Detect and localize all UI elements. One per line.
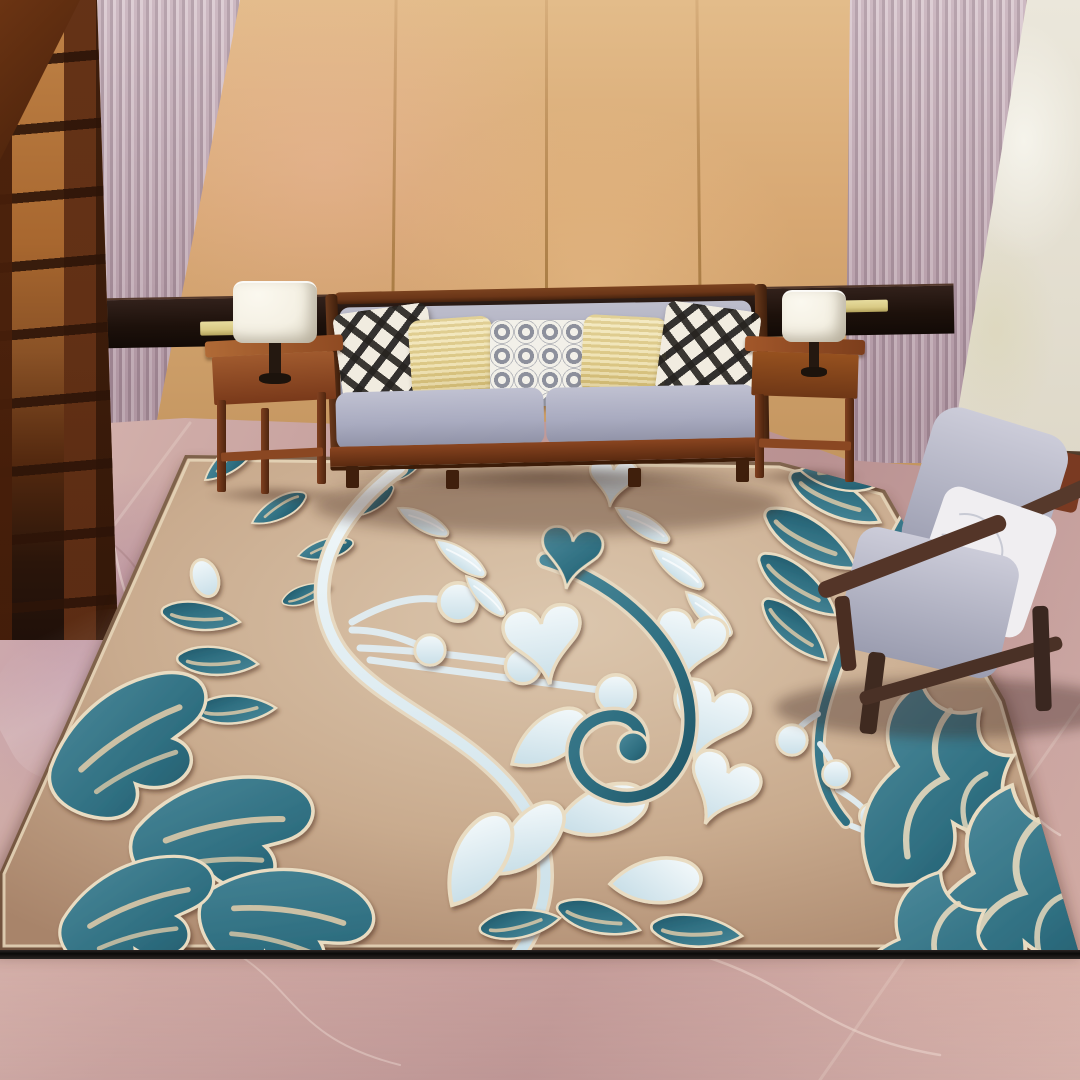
lamp-neck bbox=[269, 343, 281, 375]
lamp-base bbox=[801, 367, 827, 377]
table-shelf bbox=[759, 438, 851, 450]
sofa-seat-cushion bbox=[546, 384, 757, 446]
table-leg bbox=[217, 400, 226, 492]
sofa-leg bbox=[628, 468, 641, 487]
table-leg bbox=[845, 398, 854, 482]
table-lamp-left bbox=[233, 281, 323, 397]
lamp-shade bbox=[782, 290, 846, 342]
sofa bbox=[328, 272, 768, 504]
table-shelf bbox=[221, 447, 323, 461]
lamp-shade bbox=[233, 281, 317, 343]
lamp-neck bbox=[809, 342, 819, 368]
table-leg bbox=[317, 392, 326, 484]
lamp-base bbox=[259, 373, 291, 384]
bottom-divider bbox=[0, 950, 1080, 959]
table-lamp-right bbox=[782, 290, 852, 390]
sofa-leg bbox=[346, 466, 359, 488]
table-leg bbox=[755, 394, 764, 478]
living-room-rug-photo bbox=[0, 0, 1080, 1080]
sofa-seat-cushion bbox=[335, 387, 544, 450]
wall-panel-seam bbox=[545, 0, 548, 300]
sofa-leg bbox=[446, 470, 459, 489]
lower-floor-tint bbox=[0, 959, 1080, 1080]
throw-pillow-yellow bbox=[407, 315, 496, 399]
